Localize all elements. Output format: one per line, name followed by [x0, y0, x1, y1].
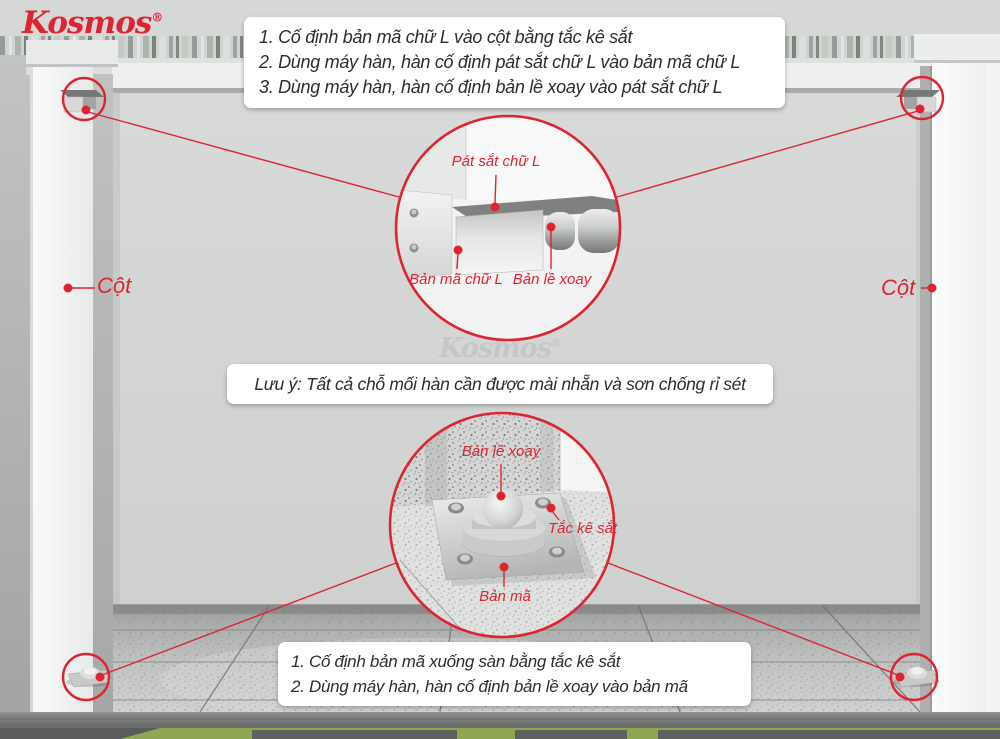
column-label-left: Cột: [97, 273, 131, 299]
brand-logo-text: Kosmos: [22, 5, 151, 41]
brand-logo: Kosmos®: [22, 6, 163, 40]
right-column: [914, 34, 1000, 712]
far-right-wall: [986, 55, 1000, 712]
label-pat-sat-chu-l: Pát sắt chữ L: [452, 153, 541, 170]
detail-bracket-body: [456, 210, 543, 275]
column-label-right: Cột: [881, 275, 915, 301]
label-ban-ma: Bản mã: [479, 588, 531, 605]
note-box: Lưu ý: Tất cả chỗ mối hàn cần được mài n…: [227, 364, 773, 404]
grass-strip: [0, 728, 1000, 739]
instruction-line: 1. Cố định bản mã chữ L vào cột bằng tắc…: [259, 25, 785, 50]
label-tac-ke-sat: Tắc kê sắt: [548, 520, 617, 537]
instruction-line: 1. Cố định bản mã xuống sàn bằng tắc kê …: [291, 649, 751, 674]
label-ban-ma-chu-l: Bản mã chữ L: [409, 271, 503, 288]
label-ban-le-xoay-top: Bản lề xoay: [513, 271, 591, 288]
instruction-box-bottom: 1. Cố định bản mã xuống sàn bằng tắc kê …: [278, 642, 751, 706]
instruction-line: 2. Dùng máy hàn, hàn cố định bản lề xoay…: [291, 674, 751, 699]
curb: [0, 712, 1000, 728]
instruction-box-top: 1. Cố định bản mã chữ L vào cột bằng tắc…: [244, 17, 785, 108]
left-column: [26, 40, 118, 712]
far-left-wall: [0, 55, 33, 712]
detail-hinge-cylinder: [578, 209, 620, 253]
detail-ban-ma-plate: [398, 190, 452, 279]
instruction-line: 3. Dùng máy hàn, hàn cố định bản lề xoay…: [259, 75, 785, 100]
instruction-line: 2. Dùng máy hàn, hàn cố định pát sắt chữ…: [259, 50, 785, 75]
registered-mark: ®: [151, 11, 163, 25]
label-ban-le-xoay-bottom: Bản lề xoay: [462, 443, 540, 460]
gate-installation-diagram: Kosmos® 1. Cố định bản mã chữ L vào cột …: [0, 0, 1000, 739]
brand-watermark: Kosmos®: [439, 333, 561, 364]
